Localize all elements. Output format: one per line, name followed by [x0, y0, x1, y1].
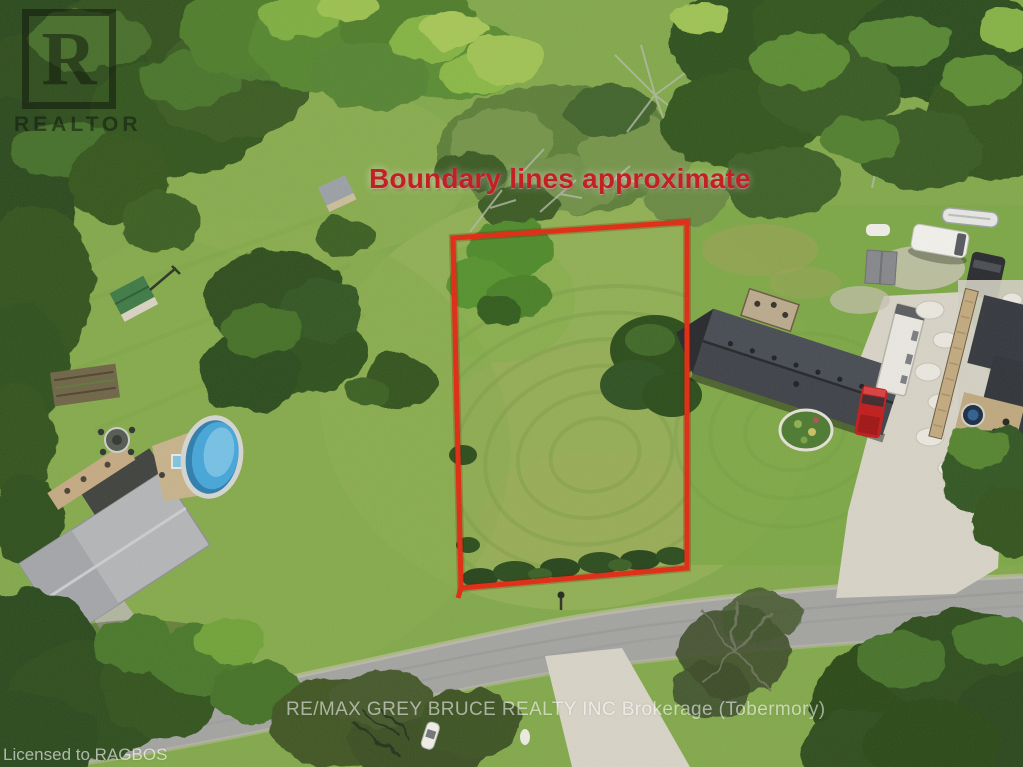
- photo-grain: [0, 0, 1023, 767]
- boundary-note-text: Boundary lines approximate: [369, 163, 751, 195]
- aerial-listing-photo: R REALTOR Boundary lines approximate RE/…: [0, 0, 1023, 767]
- realtor-logo: R REALTOR: [14, 9, 124, 135]
- realtor-logo-frame: R: [22, 9, 116, 109]
- realtor-logo-letter: R: [42, 19, 97, 99]
- aerial-scene: [0, 0, 1023, 767]
- license-watermark: Licensed to RAGBOS: [3, 745, 167, 765]
- brokerage-watermark: RE/MAX GREY BRUCE REALTY INC Brokerage (…: [286, 699, 825, 721]
- realtor-logo-label: REALTOR: [14, 114, 124, 135]
